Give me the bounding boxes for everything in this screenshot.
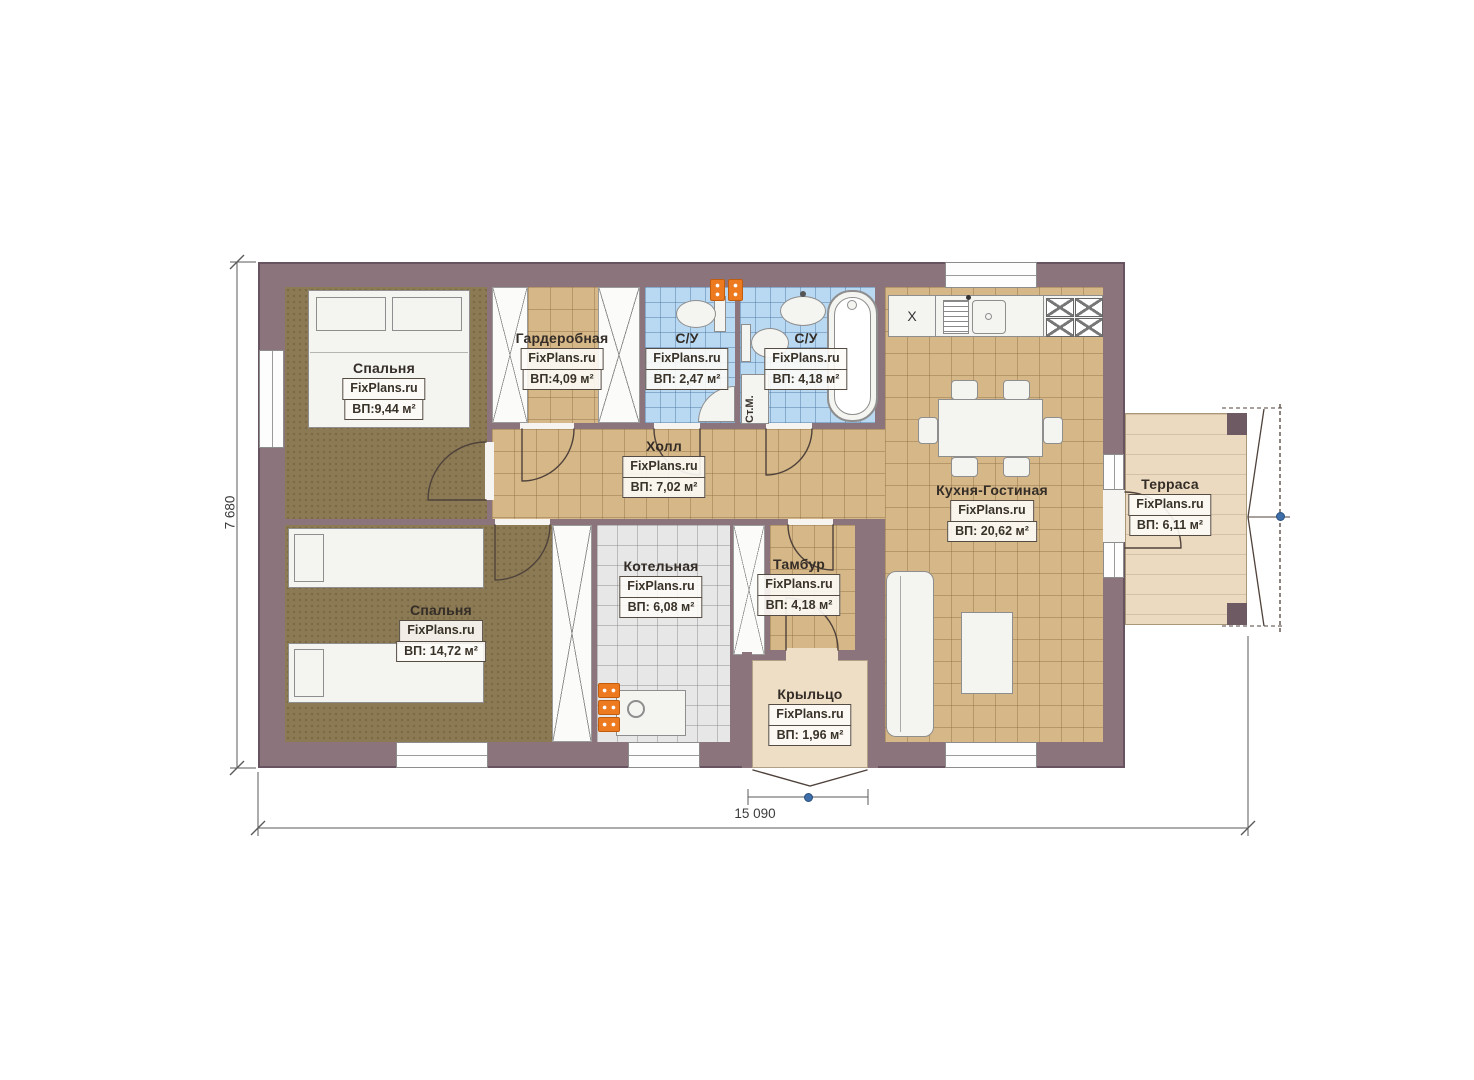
door-opening-bathroom-2	[766, 423, 812, 429]
dimension-handle-porch[interactable]	[804, 793, 813, 802]
dimension-width: 15 090	[700, 806, 810, 821]
floor-plan-canvas: Ст.М. X	[0, 0, 1474, 1080]
chair	[918, 417, 938, 444]
chair	[951, 457, 978, 477]
room-title: С/У	[794, 330, 817, 346]
room-label-bathroom-2: С/У FixPlans.ru ВП: 4,18 м²	[764, 330, 847, 390]
room-label-bedroom-1: Спальня FixPlans.ru ВП:9,44 м²	[342, 360, 425, 420]
pillow	[316, 297, 386, 331]
room-label-kitchen-living: Кухня-Гостиная FixPlans.ru ВП: 20,62 м²	[936, 482, 1048, 542]
room-area: ВП: 14,72 м²	[396, 641, 486, 663]
room-brand: FixPlans.ru	[1128, 494, 1211, 516]
room-area: ВП: 7,02 м²	[623, 477, 706, 499]
room-brand: FixPlans.ru	[520, 348, 603, 370]
door-opening-bathroom-1	[654, 423, 700, 429]
door-opening-tambour	[788, 519, 833, 525]
window-living-bottom	[945, 742, 1037, 768]
pillow	[294, 649, 324, 697]
pillow	[294, 534, 324, 582]
door-opening-bedroom-1	[485, 442, 494, 500]
chair	[1003, 457, 1030, 477]
radiator	[598, 683, 620, 698]
faucet	[966, 295, 971, 300]
radiator	[728, 279, 743, 301]
bedroom-2-wardrobe	[552, 525, 592, 742]
door-opening-wardrobe	[520, 423, 574, 429]
door-opening-bedroom-2	[495, 519, 550, 525]
room-brand: FixPlans.ru	[645, 348, 728, 370]
washbasin	[780, 296, 826, 326]
room-title: С/У	[675, 330, 698, 346]
room-title: Тамбур	[773, 556, 825, 572]
room-label-hall: Холл FixPlans.ru ВП: 7,02 м²	[622, 438, 705, 498]
radiator	[598, 700, 620, 715]
room-title: Холл	[646, 438, 682, 454]
room-area: ВП: 6,11 м²	[1129, 515, 1211, 537]
room-label-tambour: Тамбур FixPlans.ru ВП: 4,18 м²	[757, 556, 840, 616]
chair	[1003, 380, 1030, 400]
boiler-counter	[616, 690, 686, 736]
door-opening-terrace	[1103, 490, 1125, 542]
porch-wall-right	[868, 652, 878, 768]
window-bedroom-1	[259, 350, 284, 448]
room-brand: FixPlans.ru	[764, 348, 847, 370]
room-brand: FixPlans.ru	[619, 576, 702, 598]
room-label-terrace: Терраса FixPlans.ru ВП: 6,11 м²	[1128, 476, 1211, 536]
window-boiler	[628, 742, 700, 768]
faucet	[800, 291, 806, 297]
room-title: Терраса	[1141, 476, 1199, 492]
washing-machine-label: Ст.М.	[744, 377, 756, 423]
terrace-post-top	[1227, 413, 1247, 435]
room-label-bedroom-2: Спальня FixPlans.ru ВП: 14,72 м²	[396, 602, 486, 662]
blanket-line	[310, 352, 468, 353]
terrace-post-bottom	[1227, 603, 1247, 625]
chair	[1043, 417, 1063, 444]
porch-wall-left	[742, 652, 752, 768]
toilet-tank	[741, 324, 751, 362]
window-bedroom-2	[396, 742, 488, 768]
room-label-boiler: Котельная FixPlans.ru ВП: 6,08 м²	[619, 558, 702, 618]
window-kitchen-top	[945, 262, 1037, 288]
boiler-unit	[627, 700, 645, 718]
kitchen-cabinet-x: X	[888, 295, 936, 337]
room-brand: FixPlans.ru	[950, 500, 1033, 522]
room-title: Крыльцо	[777, 686, 842, 702]
stove-burner	[1075, 318, 1103, 337]
coffee-table	[961, 612, 1013, 694]
window-terrace-1	[1103, 454, 1124, 490]
room-label-porch: Крыльцо FixPlans.ru ВП: 1,96 м²	[768, 686, 851, 746]
room-title: Гардеробная	[516, 330, 609, 346]
dimension-handle-terrace[interactable]	[1276, 512, 1285, 521]
window-terrace-2	[1103, 542, 1124, 578]
room-brand: FixPlans.ru	[399, 620, 482, 642]
dimension-height: 7 680	[223, 483, 238, 543]
stove-burner	[1075, 298, 1103, 317]
room-area: ВП: 4,18 м²	[758, 595, 841, 617]
bathtub-drain	[847, 300, 857, 310]
dining-table	[938, 399, 1043, 457]
room-label-bathroom-1: С/У FixPlans.ru ВП: 2,47 м²	[645, 330, 728, 390]
room-area: ВП:4,09 м²	[522, 369, 601, 391]
chair	[951, 380, 978, 400]
room-title: Котельная	[623, 558, 698, 574]
room-title: Кухня-Гостиная	[936, 482, 1048, 498]
room-title: Спальня	[410, 602, 472, 618]
pillow	[392, 297, 462, 331]
room-brand: FixPlans.ru	[768, 704, 851, 726]
room-area: ВП: 20,62 м²	[947, 521, 1037, 543]
room-title: Спальня	[353, 360, 415, 376]
room-brand: FixPlans.ru	[757, 574, 840, 596]
radiator	[598, 717, 620, 732]
stove-burner	[1046, 298, 1074, 317]
room-label-wardrobe: Гардеробная FixPlans.ru ВП:4,09 м²	[516, 330, 609, 390]
room-brand: FixPlans.ru	[342, 378, 425, 400]
porch-door-opening	[786, 648, 838, 664]
sink-drain	[985, 313, 992, 320]
dish-rack	[943, 300, 969, 334]
room-area: ВП: 1,96 м²	[769, 725, 852, 747]
room-brand: FixPlans.ru	[622, 456, 705, 478]
room-area: ВП:9,44 м²	[344, 399, 423, 421]
room-area: ВП: 2,47 м²	[646, 369, 729, 391]
room-area: ВП: 4,18 м²	[765, 369, 848, 391]
sofa-seat-line	[900, 576, 901, 732]
radiator	[710, 279, 725, 301]
sofa	[886, 571, 934, 737]
toilet-bowl	[676, 300, 716, 328]
stove-burner	[1046, 318, 1074, 337]
room-area: ВП: 6,08 м²	[620, 597, 703, 619]
